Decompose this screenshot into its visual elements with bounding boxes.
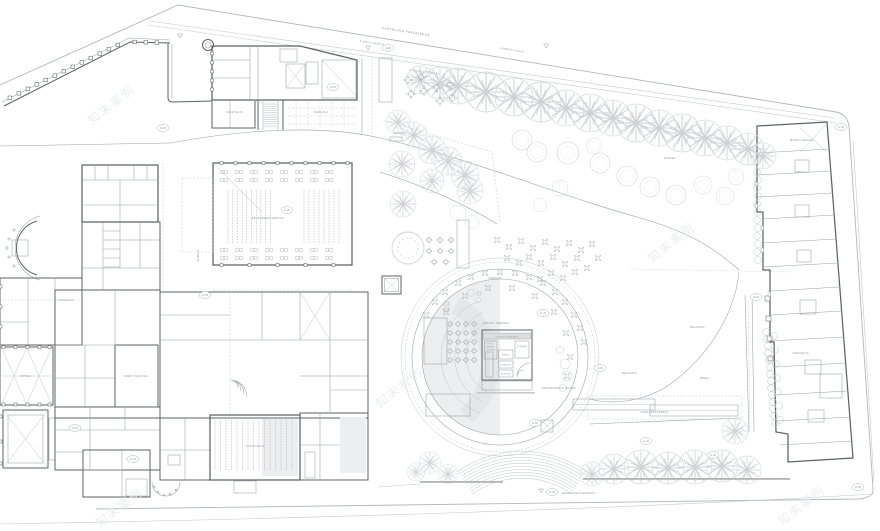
area-label: KANPOKO TERRAZA [410,68,440,76]
kiosk-room-1: BARRA [502,354,510,357]
level-badge: 11.05 [855,486,861,489]
south-promenade [378,478,790,488]
level-badge: 11.10 [532,422,538,425]
level-badge: 11.20 [284,209,290,212]
stair [820,374,842,398]
level-badge: 11.05 [597,367,603,370]
parterre-zone [588,396,742,419]
rotunda [6,216,40,280]
portico [152,482,180,496]
room-label: KAFETEGIA [226,110,243,114]
kiosk-legend-1: KUTXA [486,343,493,346]
site-plan-drawing: KIOSKOA · OINPLANOA KUTXA EDARIAK IZOZKI… [0,0,880,531]
plan-labels: GAZTELUKO PASEALEKUA ESPALOI BERRIA SARR… [21,26,814,495]
ramp [264,102,277,128]
level-badge: 11.10 [643,440,649,443]
area-label: LORATEGIA [792,351,809,355]
stage-label: ESZENA [196,250,200,262]
watermark-text: 知末案例 [775,482,828,528]
pergola-grid [288,102,356,126]
entry-steps [234,481,256,493]
tree-row-south [407,418,761,486]
level-badge: 11.05 [202,294,208,297]
scattered-tables [494,237,601,282]
hall-label: ERAKUSKETA ARETOA [252,216,285,220]
room-label: LANGELAK [58,298,74,302]
wing-label: MUSEO HEGALA [790,138,814,142]
kiosk-room-3: BILTEGIA [501,372,511,375]
kiosk-title: KIOSKOA · OINPLANOA [495,335,519,338]
watermark-text: 知末案例 [645,219,698,265]
area-label: BELARDIA [622,371,637,375]
tree-cluster-west [386,110,483,217]
street-label: GAZTELUKO PASEALEKUA [382,26,430,37]
stair [280,49,297,62]
room-label: PERGOLA [314,110,328,114]
fan-stair [230,380,247,397]
top-building [203,40,373,136]
level-badge: 11.05 [160,127,166,130]
courtyard-label: PATIOA [21,374,32,378]
site-plan-page: KIOSKOA · OINPLANOA KUTXA EDARIAK IZOZKI… [0,0,880,531]
watermark-text: 知末案例 [85,81,138,127]
auditorium-label: AUDITORIOA [246,444,265,448]
kiosk-legend-3: IZOZKIAK [486,349,496,352]
path-label: BIDEA [700,376,709,380]
level-badge: 11.20 [330,86,336,89]
stair [305,452,315,478]
south-steps [457,451,587,494]
level-badge: 11.25 [838,126,844,129]
kiosk-room-4: KOMUNAK [517,345,528,348]
level-badge: 11.15 [130,458,136,461]
bench [390,137,402,141]
level-badge: 11.30 [72,427,78,430]
stair [306,62,318,84]
level-badge: 11.05 [753,296,759,299]
kiosk-room-2: SUKALDEA [500,363,512,366]
terrace-tables-nw [426,237,455,266]
street-label: ESPALOI BERRIA [360,39,385,47]
kiosk-legend-2: EDARIAK [486,346,496,349]
area-label: BELARDIA [690,325,705,329]
level-badge: 11.35 [540,312,546,315]
level-badges: 11.05 11.20 10.95 11.35 11.05 11.10 11.4… [69,45,864,496]
area-label: PROGRAMAZIO GUNEA [542,386,576,390]
small-pavilion [382,276,401,294]
roof-pavilion [3,410,55,468]
stage-annex [182,178,213,252]
watermark-text: 知末案例 [373,364,426,410]
level-badge: 10.95 [385,47,392,50]
level-badge: 11.05 [549,491,555,494]
area-label: LORE PARTERREAK [640,410,669,414]
retaining-wall [0,38,212,146]
area-label: KIOSKO TERRAZA [483,321,509,325]
level-badge: 11.40 [710,454,716,457]
area-label: TERRAZA [488,276,502,280]
bench-label: BANKUA [394,131,406,135]
right-wing-building [755,122,853,462]
area-label: PARKEA [664,156,676,160]
street-label: SARRERA KALEA [500,46,525,54]
watermark-text: 知末案例 [93,484,146,530]
planter [379,58,392,102]
hall-label: ARETO NAGUSIA [124,374,149,378]
exhibition-hall [163,162,352,291]
palace-complex [0,165,368,497]
note-label: ERAKUSKETA EREMUA [562,491,595,495]
